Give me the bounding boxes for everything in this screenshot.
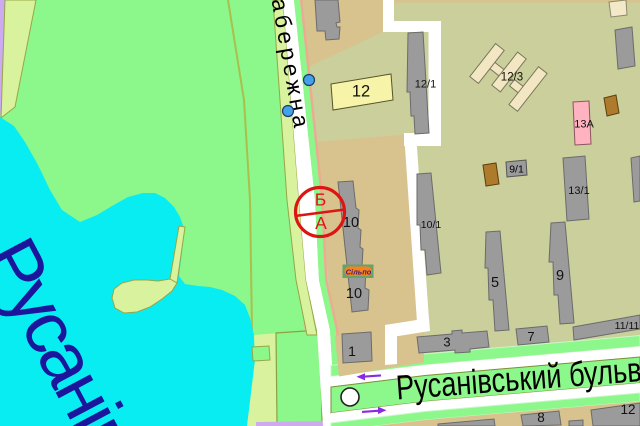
svg-text:А: А	[315, 213, 327, 233]
svg-text:12/1: 12/1	[415, 79, 436, 91]
svg-text:Сільпо: Сільпо	[346, 268, 372, 277]
svg-text:9/1: 9/1	[509, 164, 524, 176]
svg-text:12: 12	[352, 83, 370, 101]
svg-text:3: 3	[443, 335, 450, 350]
svg-text:13/1: 13/1	[568, 185, 589, 197]
svg-text:8: 8	[537, 410, 545, 425]
svg-text:11/11: 11/11	[615, 320, 640, 332]
svg-text:13А: 13А	[574, 119, 594, 131]
svg-text:9: 9	[556, 268, 564, 284]
svg-text:5: 5	[491, 275, 499, 291]
svg-text:12: 12	[620, 402, 635, 417]
svg-text:10/1: 10/1	[421, 219, 442, 231]
svg-text:12/3: 12/3	[501, 72, 523, 84]
svg-text:Б: Б	[315, 190, 326, 210]
svg-text:10: 10	[346, 286, 362, 302]
svg-text:7: 7	[527, 329, 534, 344]
svg-text:1: 1	[348, 343, 356, 359]
